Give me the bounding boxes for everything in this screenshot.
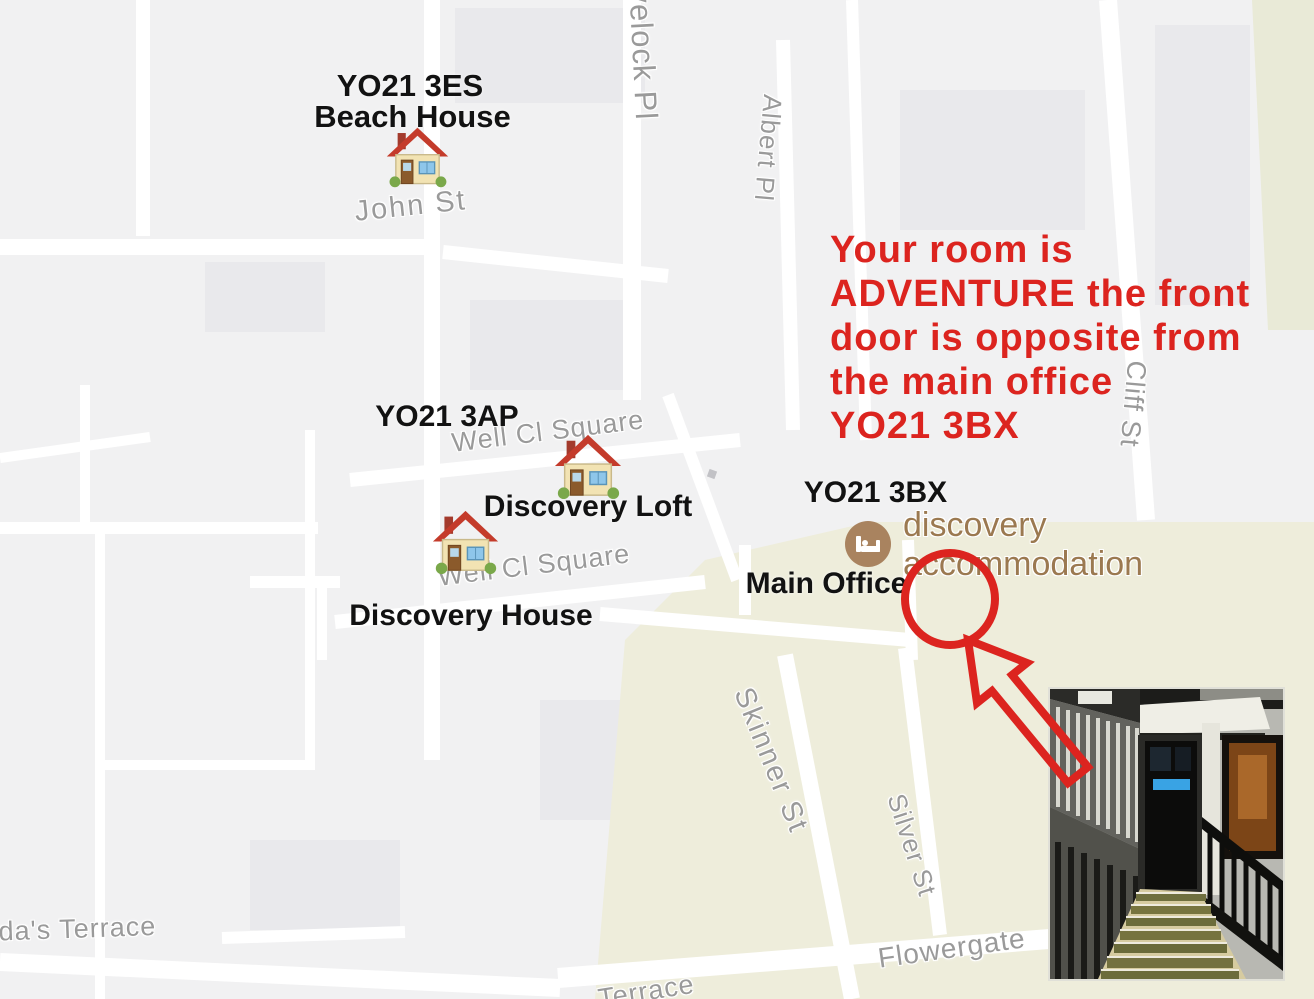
note-line: Your room is <box>830 228 1250 272</box>
lodging-bed-icon <box>845 521 891 567</box>
poi-label-discovery: discovery <box>903 506 1047 545</box>
marker-label-discovery-house-name: Discovery House <box>345 599 597 633</box>
marker-label-main-office-name: Main Office <box>744 567 909 601</box>
note-line: the main office <box>830 360 1250 404</box>
note-line: YO21 3BX <box>830 404 1250 448</box>
note-line: ADVENTURE the front <box>830 272 1250 316</box>
marker-label-discovery-loft-postcode: YO21 3AP <box>372 400 522 434</box>
map-canvas: Havelock Pl Albert Pl John St Well Cl Sq… <box>0 0 1314 999</box>
marker-label-beach-house-name: Beach House <box>300 99 525 135</box>
street-label-hildas-terrace: ilda's Terrace <box>0 911 157 948</box>
red-circle-annotation <box>901 549 999 649</box>
entrance-photo-image <box>1050 689 1283 979</box>
marker-label-main-office-postcode: YO21 3BX <box>798 476 953 510</box>
note-line: door is opposite from <box>830 316 1250 360</box>
marker-label-discovery-loft-name: Discovery Loft <box>478 490 698 524</box>
note-text: Your room is ADVENTURE the front door is… <box>830 228 1250 448</box>
entrance-photo <box>1048 687 1285 981</box>
